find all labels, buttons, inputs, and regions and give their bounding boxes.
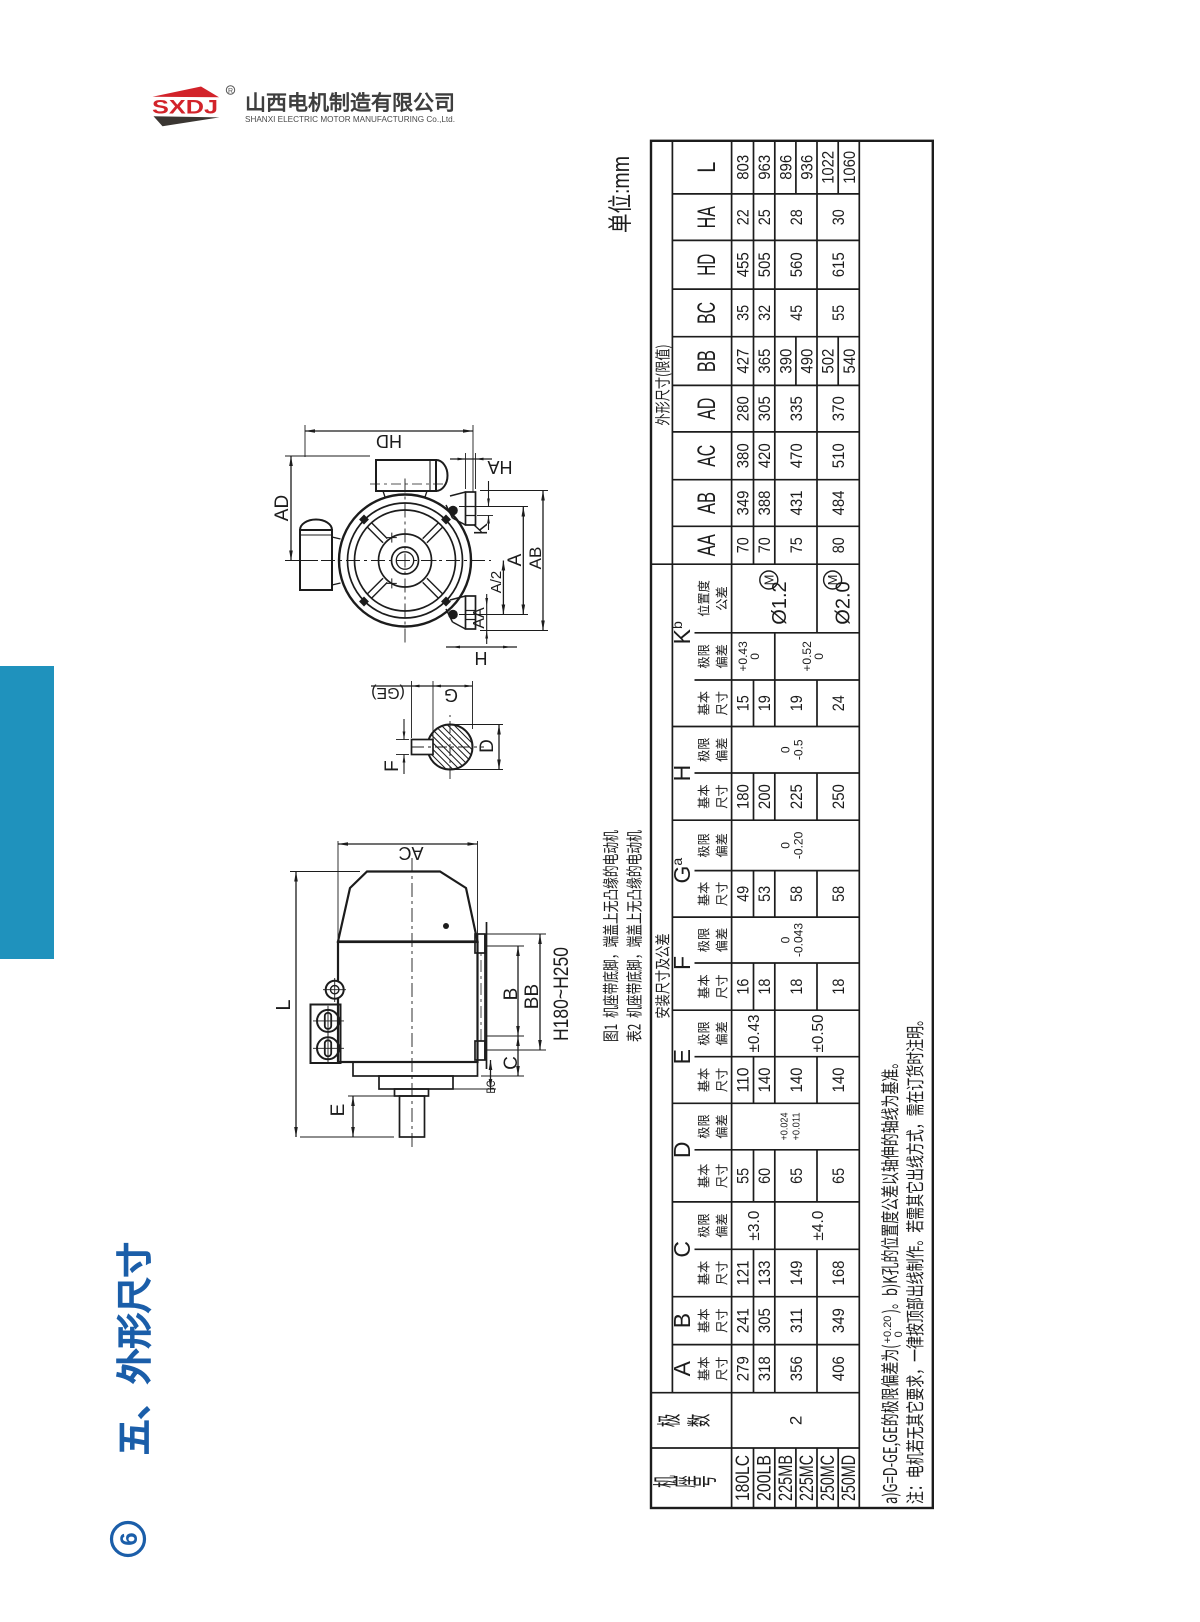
svg-text:390: 390 xyxy=(776,349,795,374)
svg-text:K: K xyxy=(471,523,491,535)
svg-text:BC: BC xyxy=(693,302,721,324)
svg-text:0: 0 xyxy=(748,653,762,660)
svg-text:200LB: 200LB xyxy=(755,1455,776,1501)
svg-text:58: 58 xyxy=(829,886,848,902)
svg-text:305: 305 xyxy=(755,1308,774,1333)
svg-text:510: 510 xyxy=(829,443,848,468)
svg-text:406: 406 xyxy=(829,1356,848,1381)
svg-text:615: 615 xyxy=(829,252,848,277)
svg-text:168: 168 xyxy=(829,1261,848,1286)
svg-text:431: 431 xyxy=(787,491,806,516)
svg-text:AA: AA xyxy=(693,534,721,556)
svg-text:-0.043: -0.043 xyxy=(792,923,806,957)
svg-text:35: 35 xyxy=(734,305,753,321)
svg-text:896: 896 xyxy=(776,155,795,180)
svg-text:±3.0: ±3.0 xyxy=(746,1211,763,1241)
svg-text:470: 470 xyxy=(787,443,806,468)
svg-text:180LC: 180LC xyxy=(733,1455,754,1501)
svg-text:311: 311 xyxy=(787,1308,806,1333)
svg-text:484: 484 xyxy=(829,491,848,516)
svg-text:BB: BB xyxy=(522,984,543,1009)
svg-text:A: A xyxy=(505,553,526,566)
svg-text:E: E xyxy=(328,1104,349,1117)
svg-text:241: 241 xyxy=(734,1308,753,1333)
svg-text:+0.20: +0.20 xyxy=(882,1316,894,1344)
svg-text:32: 32 xyxy=(755,305,774,321)
svg-text:55: 55 xyxy=(734,1168,753,1184)
svg-text:18: 18 xyxy=(755,979,774,995)
svg-text:0: 0 xyxy=(779,746,793,753)
svg-text:AC: AC xyxy=(398,843,423,863)
svg-text:1022: 1022 xyxy=(819,151,838,184)
svg-text:318: 318 xyxy=(755,1356,774,1381)
svg-text:225: 225 xyxy=(787,784,806,809)
svg-text:22: 22 xyxy=(734,209,753,225)
svg-text:G: G xyxy=(444,685,458,705)
svg-text:53: 53 xyxy=(755,886,774,902)
svg-text:+0.011: +0.011 xyxy=(792,1112,803,1140)
svg-text:70: 70 xyxy=(755,537,774,553)
svg-text:250: 250 xyxy=(829,784,848,809)
svg-text:±4.0: ±4.0 xyxy=(810,1211,827,1241)
svg-text:502: 502 xyxy=(819,349,838,374)
svg-text:356: 356 xyxy=(787,1356,806,1381)
svg-text:±0.50: ±0.50 xyxy=(810,1014,827,1052)
svg-text:349: 349 xyxy=(829,1308,848,1333)
svg-text:E: E xyxy=(669,1049,695,1064)
svg-text:M: M xyxy=(825,575,840,586)
svg-text:49: 49 xyxy=(734,886,753,902)
svg-text:H: H xyxy=(669,765,695,782)
svg-text:370: 370 xyxy=(829,396,848,421)
svg-text:110: 110 xyxy=(734,1068,753,1093)
svg-text:250MC: 250MC xyxy=(818,1455,839,1501)
svg-text:225MC: 225MC xyxy=(797,1455,818,1501)
svg-text:30: 30 xyxy=(829,209,848,225)
svg-text:427: 427 xyxy=(734,349,753,374)
svg-text:A/2: A/2 xyxy=(488,571,505,594)
svg-text:AC: AC xyxy=(693,445,721,467)
svg-text:75: 75 xyxy=(787,537,806,553)
svg-text:28: 28 xyxy=(787,209,806,225)
svg-text:B: B xyxy=(501,988,522,1001)
svg-text:420: 420 xyxy=(755,443,774,468)
svg-text:±0.43: ±0.43 xyxy=(746,1014,763,1052)
svg-text:0: 0 xyxy=(812,653,826,660)
svg-text:60: 60 xyxy=(755,1168,774,1184)
svg-text:80: 80 xyxy=(829,537,848,553)
svg-text:L: L xyxy=(693,162,721,173)
svg-text:24: 24 xyxy=(829,695,848,711)
svg-text:C: C xyxy=(501,1056,522,1070)
svg-text:149: 149 xyxy=(787,1261,806,1286)
svg-text:225MB: 225MB xyxy=(776,1455,797,1501)
svg-text:365: 365 xyxy=(755,349,774,374)
svg-text:HA: HA xyxy=(693,206,721,228)
svg-text:55: 55 xyxy=(829,305,848,321)
svg-text:936: 936 xyxy=(798,155,817,180)
svg-text:-0.5: -0.5 xyxy=(792,739,806,760)
svg-text:121: 121 xyxy=(734,1261,753,1286)
svg-text::mm: :mm xyxy=(608,156,635,194)
svg-text:0: 0 xyxy=(779,936,793,943)
svg-text:A: A xyxy=(669,1360,695,1376)
svg-text:25: 25 xyxy=(755,209,774,225)
svg-text:BB: BB xyxy=(693,350,721,372)
svg-text:505: 505 xyxy=(755,252,774,277)
svg-text:H: H xyxy=(475,648,488,668)
svg-text:BC: BC xyxy=(484,1080,498,1093)
svg-text:F: F xyxy=(669,956,695,970)
svg-text:2: 2 xyxy=(787,1416,806,1425)
svg-text:560: 560 xyxy=(787,252,806,277)
svg-text:L: L xyxy=(273,999,295,1010)
svg-text:B: B xyxy=(669,1313,695,1328)
svg-text:335: 335 xyxy=(787,396,806,421)
svg-text:C: C xyxy=(669,1241,695,1258)
svg-text:280: 280 xyxy=(734,396,753,421)
svg-text:279: 279 xyxy=(734,1356,753,1381)
svg-text:1060: 1060 xyxy=(840,151,859,184)
svg-text:140: 140 xyxy=(829,1068,848,1093)
svg-text:455: 455 xyxy=(734,252,753,277)
svg-text:H180~H250: H180~H250 xyxy=(550,947,573,1041)
svg-text:AB: AB xyxy=(526,547,545,570)
svg-text:349: 349 xyxy=(734,491,753,516)
svg-text:140: 140 xyxy=(787,1068,806,1093)
svg-text:16: 16 xyxy=(734,979,753,995)
svg-text:15: 15 xyxy=(734,695,753,711)
svg-text:SHANXI ELECTRIC MOTOR MANUF: SHANXI ELECTRIC MOTOR MANUFACTURING Co.,… xyxy=(245,115,455,124)
svg-text:490: 490 xyxy=(798,349,817,374)
svg-text:140: 140 xyxy=(755,1068,774,1093)
svg-text:M: M xyxy=(761,575,776,586)
svg-text:19: 19 xyxy=(787,695,806,711)
svg-text:SXDJ: SXDJ xyxy=(152,98,218,119)
svg-text:133: 133 xyxy=(755,1261,774,1286)
svg-text:HA: HA xyxy=(487,457,512,477)
svg-text:200: 200 xyxy=(755,784,774,809)
svg-text:250MD: 250MD xyxy=(839,1455,860,1501)
svg-text:388: 388 xyxy=(755,491,774,516)
svg-text:AA: AA xyxy=(471,607,488,629)
svg-text:F: F xyxy=(382,760,403,772)
svg-text:540: 540 xyxy=(840,349,859,374)
svg-text:18: 18 xyxy=(787,979,806,995)
svg-text:0: 0 xyxy=(779,842,793,849)
svg-text:D: D xyxy=(669,1141,695,1158)
svg-text:963: 963 xyxy=(755,155,774,180)
svg-text:D: D xyxy=(477,739,498,753)
svg-text:AD: AD xyxy=(272,495,293,521)
svg-text:18: 18 xyxy=(829,979,848,995)
svg-text:803: 803 xyxy=(734,155,753,180)
svg-text:HD: HD xyxy=(693,254,721,276)
svg-text:R: R xyxy=(228,88,233,95)
svg-text:58: 58 xyxy=(787,886,806,902)
svg-text:70: 70 xyxy=(734,537,753,553)
svg-text:HD: HD xyxy=(376,431,402,451)
svg-text:380: 380 xyxy=(734,443,753,468)
svg-text:6: 6 xyxy=(116,1532,143,1545)
svg-text:+0.024: +0.024 xyxy=(780,1112,791,1140)
svg-text:45: 45 xyxy=(787,305,806,321)
svg-text:19: 19 xyxy=(755,695,774,711)
svg-text:65: 65 xyxy=(829,1168,848,1184)
svg-text:AB: AB xyxy=(693,492,721,514)
svg-text:0: 0 xyxy=(893,1331,905,1337)
svg-text:-0.20: -0.20 xyxy=(792,831,806,859)
svg-text:305: 305 xyxy=(755,396,774,421)
svg-text:180: 180 xyxy=(734,784,753,809)
svg-text:65: 65 xyxy=(787,1168,806,1184)
svg-text:(GE): (GE) xyxy=(371,684,405,701)
svg-text:AD: AD xyxy=(693,398,721,420)
